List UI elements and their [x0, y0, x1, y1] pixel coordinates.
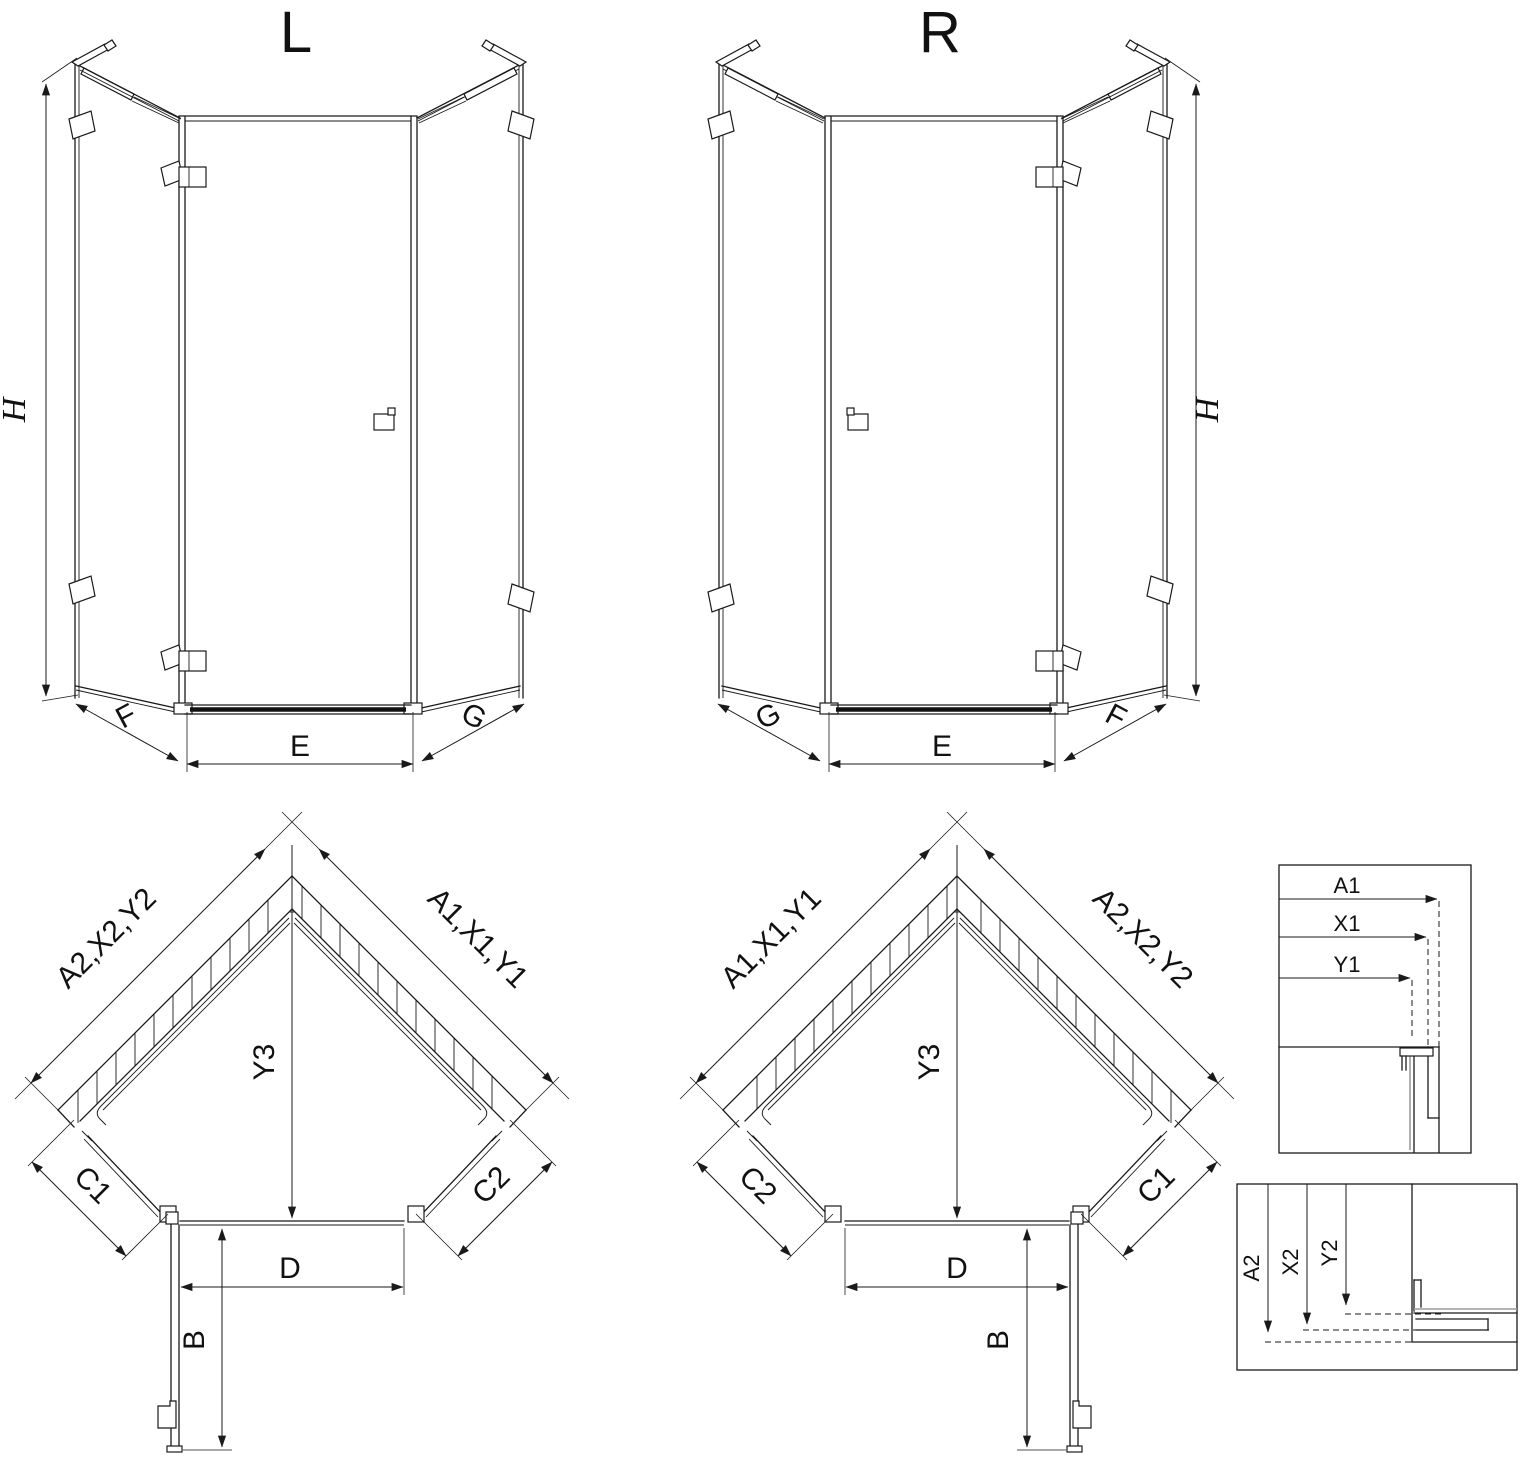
plan-l-c1-label: C1 — [67, 1160, 117, 1210]
dim-label-height-right: H — [1189, 395, 1226, 423]
plan-r-c1-label: C1 — [1131, 1160, 1181, 1210]
detail-top-y1-label: Y1 — [1334, 952, 1361, 977]
plan-l-c2-label: C2 — [466, 1160, 516, 1210]
dim-label-g-right: G — [750, 696, 786, 736]
plan-r-wall-left-label: A1,X1,Y1 — [715, 882, 828, 995]
plan-l-y3-label: Y3 — [248, 1044, 281, 1081]
detail-box-top-frame — [1279, 865, 1471, 1153]
plan-r-c2-label: C2 — [732, 1160, 782, 1210]
plan-r-d-label: D — [946, 1252, 968, 1285]
plan-l-d-label: D — [279, 1252, 301, 1285]
plan-view-left: A2,X2,Y2 A1,X1,Y1 Y3 C1 C2 D B — [15, 812, 569, 1452]
detail-bottom-a2-label: A2 — [1239, 1255, 1264, 1282]
plan-r-b-label: B — [982, 1330, 1015, 1350]
detail-top-x1-label: X1 — [1334, 911, 1361, 936]
isometric-view-right: R H G E F — [708, 0, 1226, 772]
dim-label-e-left: E — [290, 730, 310, 763]
detail-top-a1-label: A1 — [1334, 873, 1361, 898]
dim-label-g-left: G — [456, 696, 492, 736]
detail-box-bottom: A2 X2 Y2 — [1237, 1184, 1517, 1370]
detail-bottom-y2-label: Y2 — [1317, 1240, 1342, 1267]
plan-l-wall-left-label: A2,X2,Y2 — [50, 882, 163, 995]
technical-drawing-canvas: L H F E G R H G E F A2,X2,Y2 A1,X1,Y1 Y3… — [0, 0, 1523, 1460]
plan-l-b-label: B — [178, 1330, 211, 1350]
plan-view-right: A1,X1,Y1 A2,X2,Y2 Y3 C2 C1 D B — [680, 812, 1234, 1452]
isometric-view-left: L H F E G — [0, 0, 534, 772]
plan-r-y3-label: Y3 — [913, 1044, 946, 1081]
diagram-page: L H F E G R H G E F A2,X2,Y2 A1,X1,Y1 Y3… — [0, 0, 1523, 1460]
plan-l-wall-right-label: A1,X1,Y1 — [421, 882, 534, 995]
detail-bottom-x2-label: X2 — [1278, 1249, 1303, 1276]
plan-r-wall-right-label: A2,X2,Y2 — [1086, 882, 1199, 995]
view-title-right: R — [919, 0, 961, 65]
view-title-left: L — [280, 0, 312, 65]
dim-label-e-right: E — [932, 730, 952, 763]
detail-box-top: A1 X1 Y1 — [1279, 865, 1471, 1153]
dim-label-height-left: H — [0, 395, 33, 423]
